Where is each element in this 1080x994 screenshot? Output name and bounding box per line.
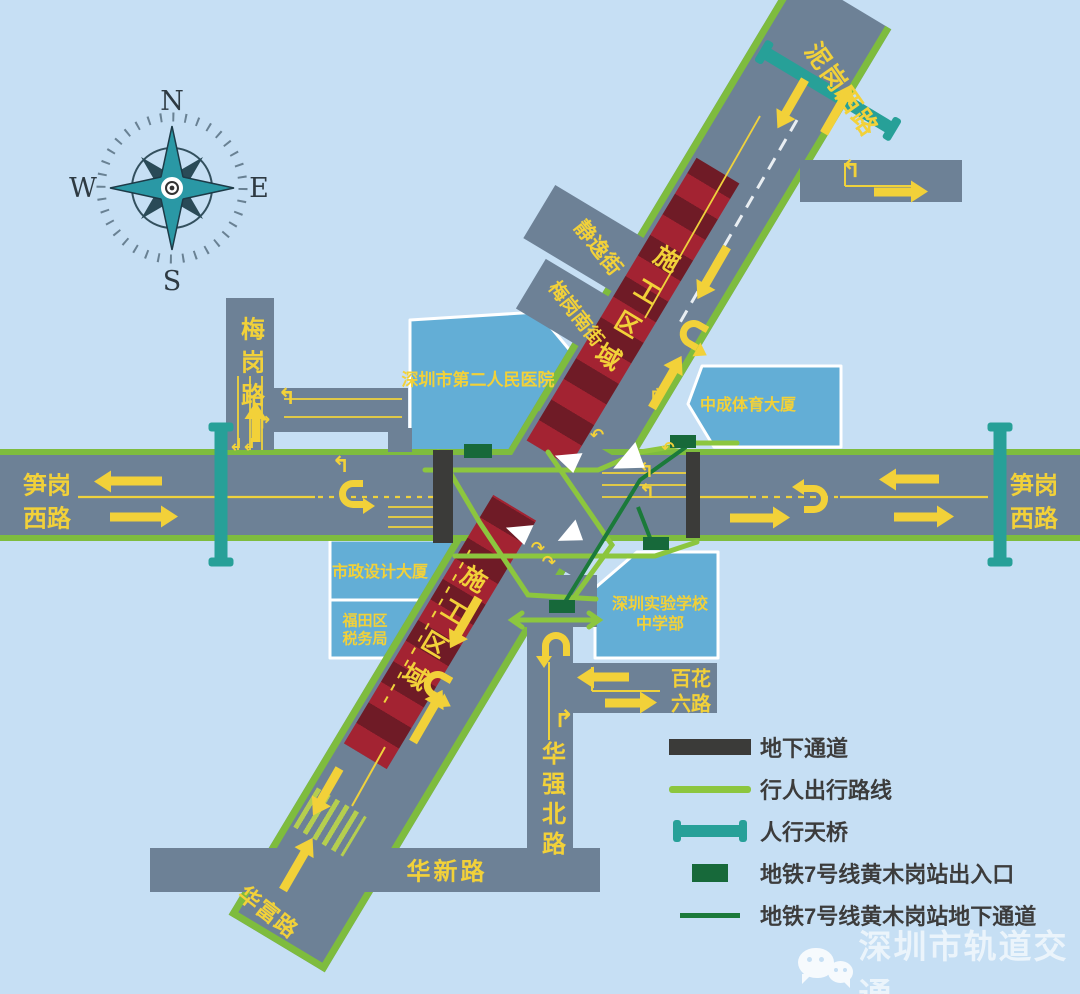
- bent-arrow-connector: ↰: [278, 387, 296, 409]
- building-label-hospital: 深圳市第二人民医院: [402, 366, 555, 391]
- road-label-sungang-west-right-l1: 笋岗: [1010, 466, 1058, 501]
- bent-arrow-meigang-2: ↲: [242, 438, 256, 455]
- legend: 地下通道 行人出行路线 人行天桥 地铁7号线黄木岗站出入口 地铁7号线黄木岗站地…: [660, 726, 1080, 936]
- legend-label: 行人出行路线: [760, 773, 892, 805]
- legend-row-underground-passage: 地下通道: [660, 726, 1080, 768]
- arrow-right-ne-stub: [874, 188, 912, 197]
- road-label-sungang-west-left-l1: 笋岗: [23, 466, 71, 501]
- building-label-municipal-design: 市政设计大厦: [332, 558, 428, 582]
- bent-arrow-top-1: ↱: [649, 388, 663, 405]
- pedestrian-route-icon: [669, 786, 751, 793]
- legend-row-metro-entrance: 地铁7号线黄木岗站出入口: [660, 852, 1080, 894]
- metro-entrance-d: [549, 600, 575, 613]
- road-label-sungang-west-left-l2: 西路: [23, 499, 71, 534]
- arrow-right-baihua: [605, 699, 641, 708]
- road-label-meigang: 梅岗路: [233, 317, 268, 416]
- footbridge-east: [994, 427, 1007, 563]
- arrow-left-sungang-east: [895, 475, 939, 484]
- footbridge-west: [215, 427, 228, 563]
- watermark-text: 深圳市轨道交通: [858, 920, 1080, 994]
- bent-arrow-ne-stub: ↰: [841, 157, 861, 181]
- footbridge-icon: [677, 825, 743, 837]
- watermark: 深圳市轨道交通: [798, 920, 1080, 994]
- road-label-huaqiang-north: 华强北路: [534, 741, 569, 861]
- legend-row-footbridge: 人行天桥: [660, 810, 1080, 852]
- bent-arrow-center-2: ↷: [542, 555, 556, 572]
- underground-passage-icon: [669, 739, 751, 755]
- bent-arrow-huaqiang: ↱: [554, 707, 574, 731]
- bent-arrow-meigang-3: ↱: [258, 416, 272, 433]
- traffic-map: N E S W 施工区域 施工区域: [0, 0, 1080, 994]
- building-label-futian-tax-l2: 税务局: [342, 628, 387, 649]
- legend-label: 地下通道: [760, 731, 848, 763]
- uturn-huaqiang-north: [542, 632, 570, 656]
- legend-row-pedestrian-route: 行人出行路线: [660, 768, 1080, 810]
- metro-entrance-icon: [692, 864, 728, 882]
- underground-passage-west: [433, 450, 453, 543]
- road-label-baihua-six-l2: 六路: [671, 688, 711, 717]
- metro-entrance-c: [643, 537, 669, 550]
- building-label-zhongcheng: 中成体育大厦: [700, 391, 796, 415]
- road-label-huaxin: 华新路: [407, 852, 488, 887]
- uturn-sungang-west: [339, 480, 363, 508]
- arrow-left-sungang-west: [110, 477, 162, 486]
- underground-passage-east: [686, 452, 700, 538]
- bent-arrow-center-3: ↶: [590, 428, 604, 445]
- metro-underground-passage-icon: [680, 913, 740, 918]
- legend-label: 人行天桥: [760, 815, 848, 847]
- arrow-right-sungang-east: [894, 513, 938, 522]
- arrow-right-sungang-west: [110, 513, 162, 522]
- bent-arrow-top-2: ↶: [661, 440, 674, 456]
- building-label-school-l2: 中学部: [636, 610, 684, 634]
- arrow-left-baihua: [593, 673, 629, 682]
- metro-entrance-a: [464, 444, 492, 458]
- bent-arrow-east-2: ↰: [639, 481, 656, 501]
- bent-arrow-sungang-median: ↰: [332, 455, 350, 477]
- road-label-sungang-west-right-l2: 西路: [1010, 499, 1058, 534]
- arrow-right-sungang-center: [730, 514, 774, 523]
- legend-label: 地铁7号线黄木岗站出入口: [760, 857, 1014, 889]
- wechat-icon: [798, 944, 850, 992]
